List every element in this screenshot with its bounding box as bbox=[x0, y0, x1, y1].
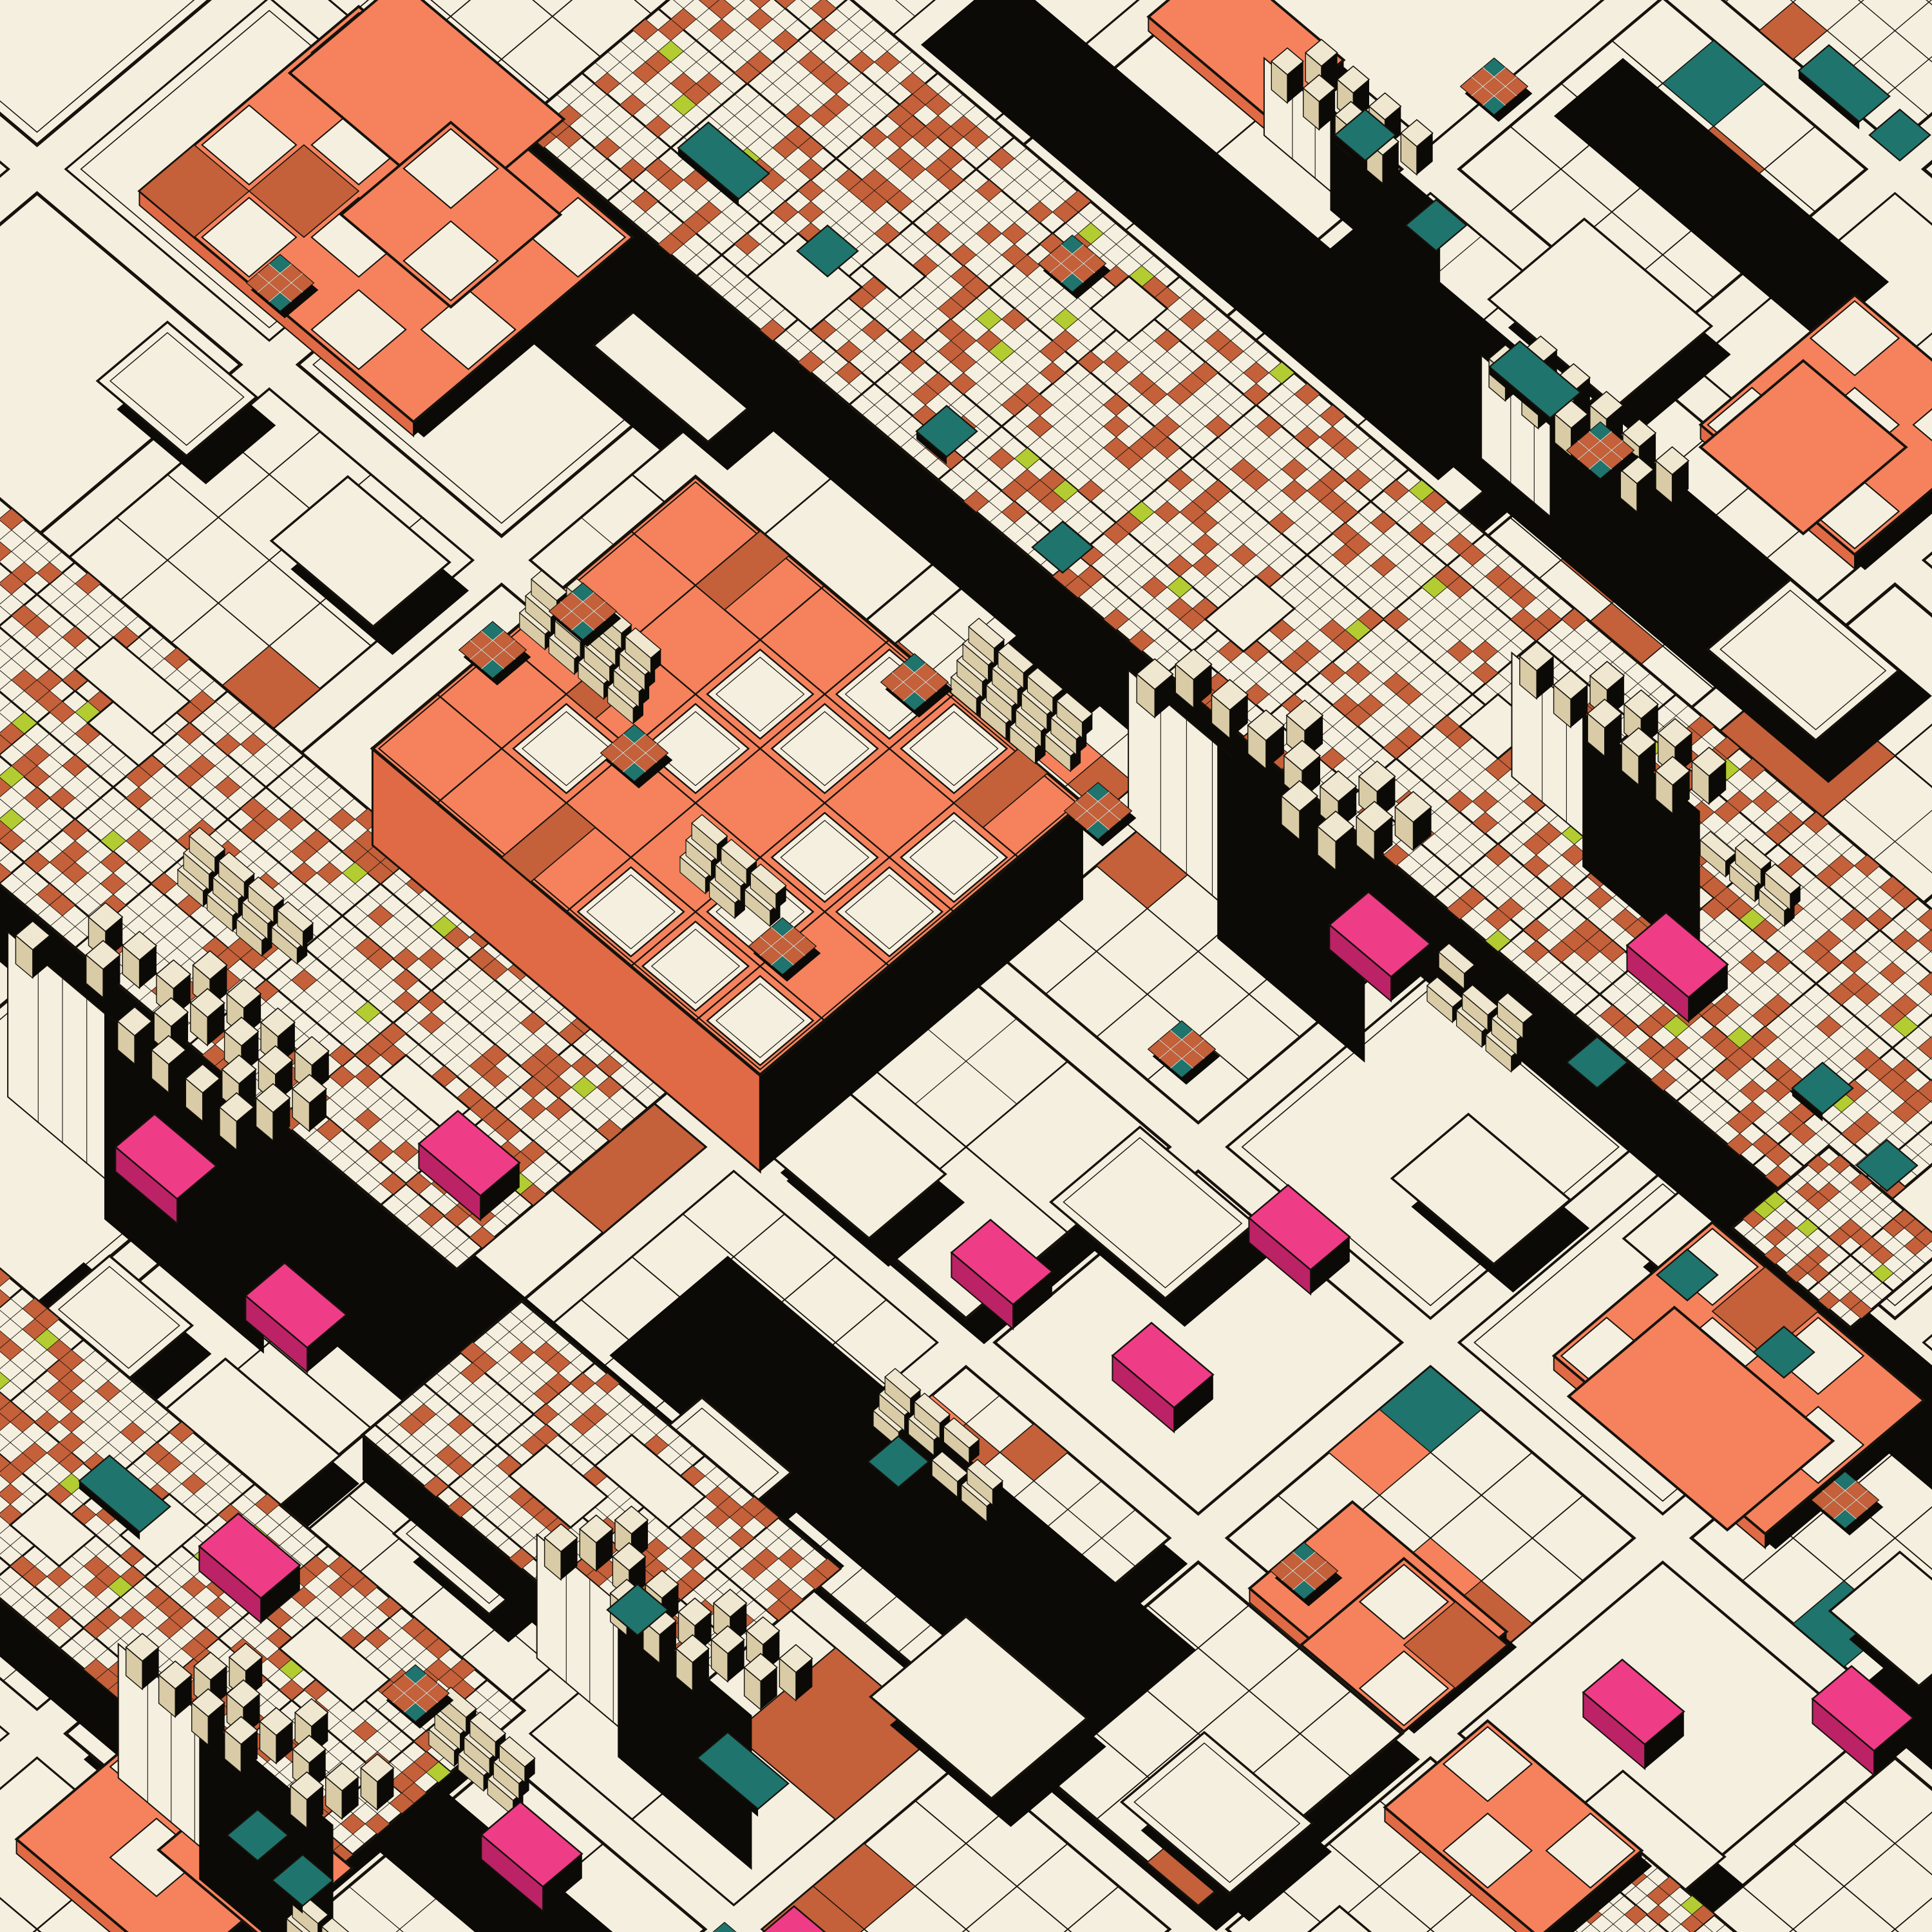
generative-isometric-artwork bbox=[0, 0, 1932, 1932]
artwork-canvas bbox=[0, 0, 1932, 1932]
